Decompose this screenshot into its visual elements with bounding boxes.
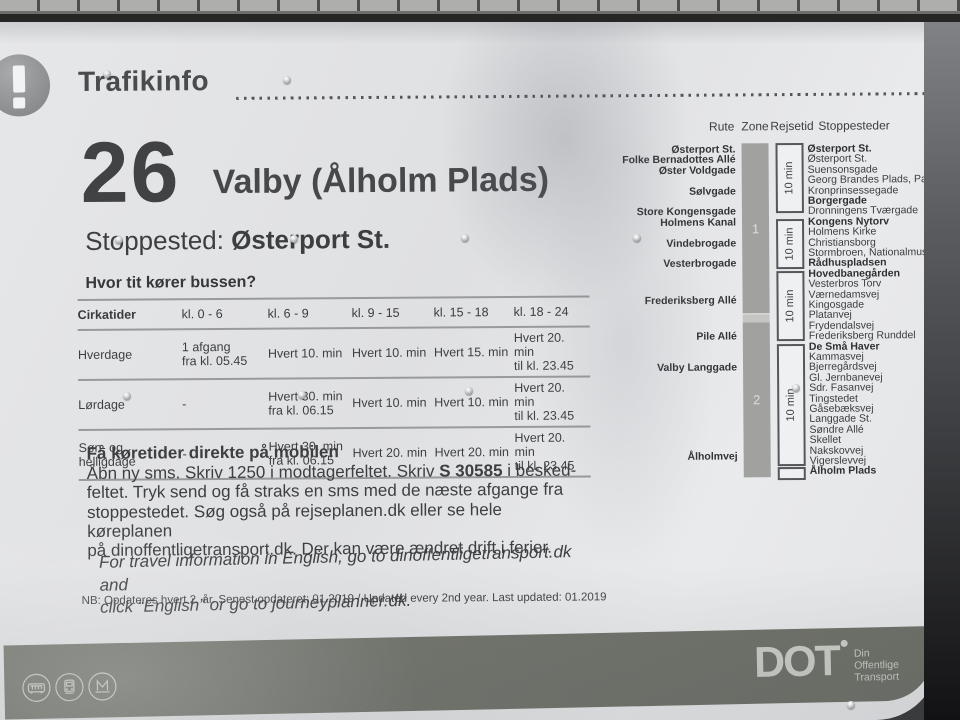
dotted-divider <box>236 92 936 100</box>
sms-code: S 30585 <box>439 461 502 480</box>
travel-time-label: 10 min <box>784 162 796 195</box>
frequency-cell: 1 afgang fra kl. 05.45 <box>182 337 268 372</box>
tagline-line-2: Offentlige <box>854 659 899 672</box>
frequency-cell: Hvert 20. min til kl. 23.45 <box>514 327 590 376</box>
screw <box>298 391 306 399</box>
column-header: Cirkatider <box>78 304 182 325</box>
column-header: kl. 0 - 6 <box>182 304 268 325</box>
table-row: Lørdage-Hvert 30. min fra kl. 06.15Hvert… <box>78 375 590 429</box>
sms-line-2: feltet. Tryk send og få straks en sms me… <box>87 480 587 503</box>
exclamation-bar <box>13 65 26 92</box>
travel-time-box: 10 min <box>776 271 804 342</box>
stops-column: Østerport St.Østerport St.SuensonsgadeGe… <box>600 112 938 114</box>
english-note: For travel information in English, go to… <box>99 540 600 619</box>
diagram-header-rejsetid: Rejsetid <box>770 119 812 133</box>
zone-segment: 2 <box>743 322 771 477</box>
travel-time-label: 10 min <box>784 227 796 260</box>
s-train-icon <box>54 672 85 703</box>
zone-label: 1 <box>752 221 759 236</box>
column-header: kl. 6 - 9 <box>268 303 352 324</box>
travel-time-box <box>778 467 806 479</box>
zone-gap <box>743 314 770 322</box>
transport-mode-icons <box>21 671 118 703</box>
page-title: Trafikinfo <box>78 65 209 98</box>
frequency-question: Hvor tit kører bussen? <box>85 274 256 293</box>
screw <box>290 235 298 243</box>
travel-time-label: 10 min <box>785 388 797 421</box>
route-diagram: Rute Zone Rejsetid Stoppesteder Østerpor… <box>600 112 938 509</box>
bus-icon <box>21 673 52 704</box>
screw <box>465 387 473 395</box>
sign-content: Trafikinfo 26 Valby (Ålholm Plads) Stopp… <box>0 18 938 720</box>
route-number: 26 <box>80 129 180 216</box>
screw <box>123 392 131 400</box>
dot-logo-text: DOT <box>754 637 840 687</box>
diagram-header-stoppesteder: Stoppesteder <box>818 118 889 132</box>
dot-logo: DOT <box>754 640 849 683</box>
table-header-row: Cirkatiderkl. 0 - 6kl. 6 - 9kl. 9 - 15kl… <box>78 295 590 329</box>
frequency-cell: - <box>182 394 268 415</box>
screw <box>103 70 111 78</box>
route-street-label: Sølvgade <box>601 186 736 198</box>
frequency-cell: Hvert 15. min <box>434 342 514 363</box>
alert-icon <box>0 54 50 116</box>
frequency-cell: Hvert 10. min <box>268 343 352 364</box>
travel-time-label: 10 min <box>784 290 796 323</box>
sign-frame-right <box>924 0 960 720</box>
route-street-label: Vindebrogade <box>601 238 736 250</box>
stop-label: Stoppested: <box>85 225 224 256</box>
stop-name-line: Stoppested: Østerport St. <box>85 224 390 257</box>
frequency-cell: Hvert 30. min fra kl. 06.15 <box>268 386 352 421</box>
screw <box>283 76 291 84</box>
row-label: Hverdage <box>78 344 182 365</box>
route-stop: Ålholm Plads <box>810 466 877 477</box>
dot-logo-dot <box>840 640 847 647</box>
tagline-line-1: Din <box>854 647 899 660</box>
travel-time-box: 10 min <box>776 219 804 269</box>
dot-tagline: Din Offentlige Transport <box>854 647 900 684</box>
route-name: Valby (Ålholm Plads) <box>213 161 550 202</box>
screw <box>633 234 641 242</box>
street-column: Østerport St.Folke Bernadottes AlléØster… <box>600 112 938 114</box>
sms-line1-pre: Åbn ny sms. Skriv 1250 i modtagerfeltet.… <box>87 462 440 483</box>
route-street-label: Øster Voldgade <box>601 165 736 177</box>
screw <box>461 234 469 242</box>
tagline-line-3: Transport <box>854 671 899 684</box>
footer-bar: DOT Din Offentlige Transport <box>4 626 935 719</box>
screw <box>792 384 800 392</box>
metro-icon <box>87 671 118 702</box>
diagram-header-rute: Rute <box>600 119 734 134</box>
screw <box>847 701 855 709</box>
frequency-cell: Hvert 20. min til kl. 23.45 <box>514 377 590 426</box>
exclamation-dot <box>13 97 25 108</box>
table-row: Hverdage1 afgang fra kl. 05.45Hvert 10. … <box>78 325 590 379</box>
zone-segment: 1 <box>741 143 769 313</box>
route-street-label: Ålholmvej <box>603 451 738 463</box>
zone-column: 12 <box>600 112 938 114</box>
travel-time-box: 10 min <box>777 344 806 467</box>
frequency-cell: Hvert 10. min <box>352 393 434 414</box>
route-street-label: Valby Langgade <box>602 363 737 375</box>
frequency-cell: Hvert 10. min <box>352 343 434 364</box>
column-header: kl. 18 - 24 <box>514 301 590 322</box>
bus-stop-info-sign-photo: Trafikinfo 26 Valby (Ålholm Plads) Stopp… <box>0 0 960 720</box>
route-street-label: Frederiksberg Allé <box>602 295 737 307</box>
rail-ticks <box>0 0 960 11</box>
column-header: kl. 9 - 15 <box>352 303 434 324</box>
stop-value: Østerport St. <box>231 224 390 255</box>
route-street-label: Vesterbrogade <box>601 259 736 271</box>
travel-time-column: 10 min10 min10 min10 min <box>600 112 938 114</box>
mounting-rail <box>0 0 960 22</box>
route-street-label: Pile Allé <box>602 332 737 344</box>
traffic-info-sign: Trafikinfo 26 Valby (Ålholm Plads) Stopp… <box>0 18 938 720</box>
sms-line1-post: i besked- <box>502 461 576 481</box>
frequency-cell: Hvert 10. min <box>434 392 514 413</box>
diagram-header-zone: Zone <box>741 119 768 133</box>
travel-time-box: 10 min <box>775 143 803 214</box>
sms-title: Få køretider direkte på mobilen <box>87 440 587 463</box>
sms-line-3: stoppestedet. Søg også på rejseplanen.dk… <box>87 499 587 541</box>
screw <box>115 236 123 244</box>
zone-label: 2 <box>753 392 760 407</box>
column-header: kl. 15 - 18 <box>434 302 514 323</box>
route-street-label: Holmens Kanal <box>601 217 736 229</box>
